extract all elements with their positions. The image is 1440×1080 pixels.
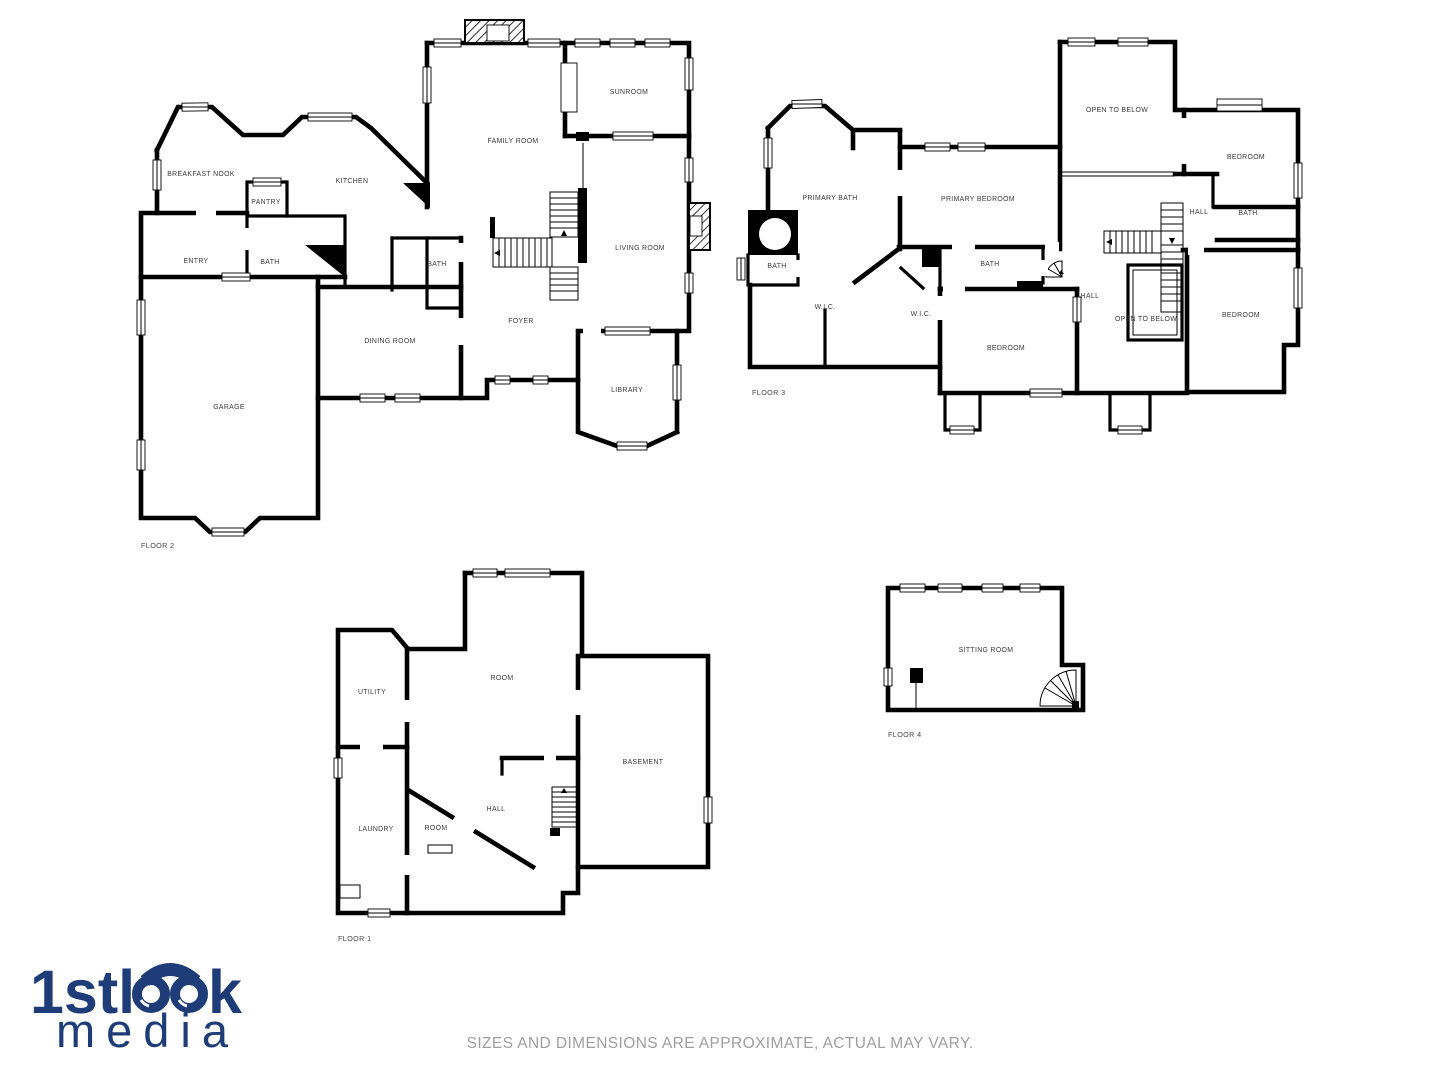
room-label-dining-room: DINING ROOM [364,338,415,345]
room-label-living-room: LIVING ROOM [615,245,665,252]
disclaimer-text: SIZES AND DIMENSIONS ARE APPROXIMATE, AC… [467,1035,974,1052]
room-label-room-lower: ROOM [425,825,448,832]
room-label-garage: GARAGE [213,404,245,411]
room-label-bath-right: BATH [1238,210,1257,217]
room-label-primary-bedroom: PRIMARY BEDROOM [941,196,1015,203]
room-label-basement: BASEMENT [623,759,664,766]
room-label-bath-left: BATH [767,263,786,270]
floor-1-walls [334,569,712,917]
room-label-room-upper: ROOM [491,675,514,682]
room-label-open-to-below-upper: OPEN TO BELOW [1086,107,1148,114]
room-label-sunroom: SUNROOM [610,89,648,96]
room-label-laundry: LAUNDRY [358,826,393,833]
floor-plan-canvas: BREAKFAST NOOK KITCHEN PANTRY ENTRY BATH… [0,0,1440,1080]
floor-1-plan: ROOM UTILITY LAUNDRY ROOM HALL BASEMENT … [334,569,712,943]
logo-text-media: media [56,1004,239,1057]
room-label-kitchen: KITCHEN [336,178,369,185]
floor-2-walls [137,20,710,536]
room-label-bedroom-bottom-right: BEDROOM [1222,312,1260,319]
room-label-wic-mid: W.I.C. [911,311,932,318]
floor-4-title: FLOOR 4 [888,730,922,739]
room-label-pantry: PANTRY [251,199,280,206]
floor-2-title: FLOOR 2 [141,541,175,550]
floor-2-plan: BREAKFAST NOOK KITCHEN PANTRY ENTRY BATH… [137,20,710,550]
room-label-bath-mid: BATH [980,261,999,268]
floor-3-walls [737,38,1302,434]
room-label-bedroom-top-right: BEDROOM [1227,154,1265,161]
room-label-hall-upper: HALL [1190,209,1209,216]
logo-binocular-bridge-icon [145,970,196,982]
room-label-entry: ENTRY [184,258,209,265]
room-label-bedroom-mid: BEDROOM [987,345,1025,352]
brand-logo: 1stl k media [30,958,242,1057]
room-label-foyer: FOYER [508,318,534,325]
room-label-bath-a: BATH [260,259,279,266]
floor-4-labels: SITTING ROOM FLOOR 4 [888,647,1013,739]
room-label-sitting-room: SITTING ROOM [959,647,1014,654]
room-label-hall-mid: HALL [1081,293,1100,300]
room-label-wic-left: W.I.C. [815,304,836,311]
room-label-utility: UTILITY [358,689,386,696]
room-label-family-room: FAMILY ROOM [487,138,538,145]
floor-1-labels: ROOM UTILITY LAUNDRY ROOM HALL BASEMENT … [338,675,664,943]
floor-3-plan: PRIMARY BATH PRIMARY BEDROOM OPEN TO BEL… [737,38,1302,434]
room-label-breakfast-nook: BREAKFAST NOOK [167,171,235,178]
floor-3-title: FLOOR 3 [752,388,786,397]
room-label-hall: HALL [487,806,506,813]
room-label-bath-b: BATH [427,261,446,268]
floor-4-plan: SITTING ROOM FLOOR 4 [884,584,1083,739]
floor-1-title: FLOOR 1 [338,934,372,943]
room-label-library: LIBRARY [611,387,643,394]
room-label-primary-bath: PRIMARY BATH [802,195,857,202]
room-label-open-to-below-lower: OPEN TO BELOW [1115,316,1177,323]
